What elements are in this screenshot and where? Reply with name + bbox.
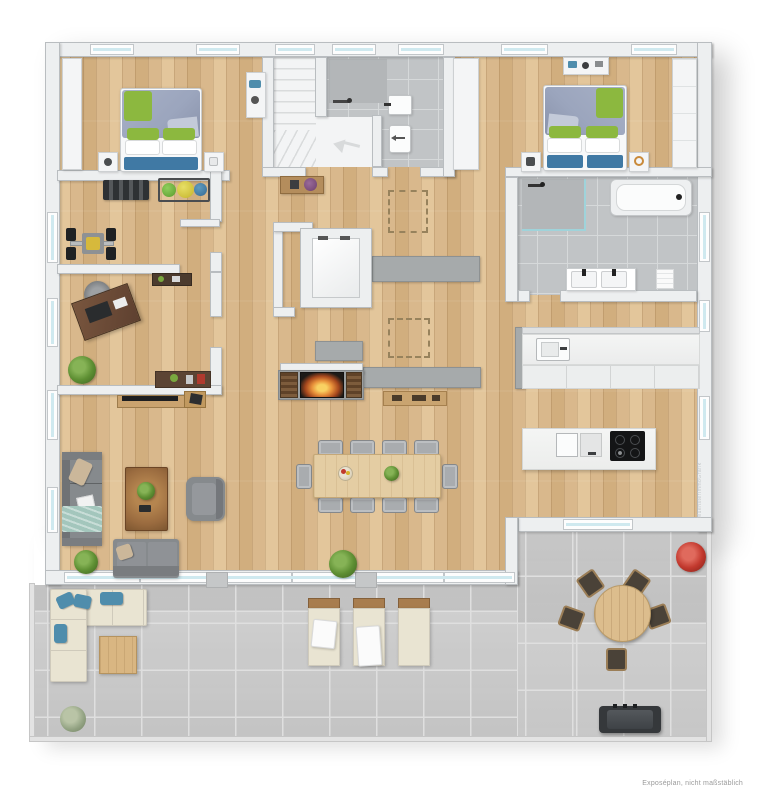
wall-bathroom-bottom-b (560, 290, 697, 302)
bathtub-faucet-icon (676, 194, 682, 200)
elevator-mechanism-icon (318, 236, 328, 240)
wall-landing-stub (372, 115, 382, 167)
hall-sideboard-item (290, 180, 299, 189)
bed1-pillow-white-right (162, 140, 197, 155)
exercise-ball-green (162, 183, 176, 197)
bed1-pillow-green-right (163, 128, 195, 140)
shelf-plant-icon (158, 276, 164, 282)
log-icon (432, 395, 440, 401)
burner-icon (630, 448, 640, 458)
wc-basin-faucet-icon (384, 103, 391, 106)
living-room-plant (74, 550, 98, 574)
weight-bench-pad (86, 237, 100, 250)
lounger-towel (311, 619, 338, 649)
sofa-blanket-teal (62, 506, 102, 532)
watermark-text: MuensterImmoGrafik (697, 408, 703, 518)
window-top-3 (275, 44, 315, 55)
bed1-pillow-white-left (125, 140, 160, 155)
dining-chair (350, 497, 375, 513)
side-table-item (189, 393, 203, 405)
terrace-shrub (60, 706, 86, 732)
shower-glass-bottom (522, 229, 586, 231)
ceiling-opening-dashed-lower (388, 318, 430, 358)
terrace-round-table (594, 585, 651, 642)
half-wall-lower (363, 367, 481, 388)
barbell-plate (106, 247, 116, 260)
kitchen-cabinets (522, 365, 700, 389)
burner-icon (615, 448, 625, 458)
window-right-1 (699, 212, 710, 262)
half-wall-small (315, 341, 363, 361)
bed1-foot-bench (124, 157, 198, 170)
outdoor-coffee-table (99, 636, 137, 674)
wc-arrow-icon (391, 135, 396, 141)
terrace-curb-left (29, 583, 35, 742)
log-icon (392, 395, 402, 401)
barbell-plate (66, 228, 76, 241)
bedroom1-desk-item (251, 96, 259, 104)
wc-shower-zone (329, 59, 387, 103)
bedroom2-closet (672, 58, 697, 168)
dining-floor-plant (329, 550, 357, 578)
window-top-4 (332, 44, 376, 55)
bed2-foot-bench-left (547, 155, 583, 168)
bed2-nightstand-item (526, 157, 535, 166)
dresser-item (568, 61, 577, 68)
wall-fitness-stub (180, 219, 220, 227)
window-top-6 (501, 44, 548, 55)
floorplan-canvas: MuensterImmoGrafik Exposéplan, nicht maß… (0, 0, 757, 800)
elevator-car (312, 238, 360, 298)
bed2-green-throw (596, 88, 623, 118)
hall-sideboard (280, 176, 324, 194)
bed2-foot-bench-right (587, 155, 623, 168)
fireplace-fire (300, 372, 344, 398)
grill-knob-icon (633, 704, 637, 708)
bed2-pillow-white-right (585, 138, 620, 153)
window-top-5 (398, 44, 444, 55)
barbell-plate (106, 228, 116, 241)
kitchen-sink-basin (541, 342, 559, 357)
bedroom1-wardrobe (62, 58, 82, 170)
sideboard-plant-icon (170, 374, 178, 382)
dining-table-plant (384, 466, 399, 481)
terrace-curb-bottom (29, 736, 712, 742)
dresser-item (582, 62, 589, 69)
window-top-7 (631, 44, 677, 55)
terrace-curb-right (706, 526, 712, 742)
loveseat-backrest (113, 566, 179, 576)
coffee-table-remote (139, 505, 151, 512)
outdoor-pillow (100, 592, 123, 605)
office-plant (68, 356, 96, 384)
wall-bathroom-left (505, 177, 518, 302)
wall-office-right-a (210, 272, 222, 317)
window-left-1 (47, 212, 58, 263)
loveseat-cushion (148, 542, 177, 568)
elevator-mechanism-icon (340, 236, 350, 240)
window-right-2 (699, 300, 710, 332)
bed1-lamp-icon (104, 158, 112, 166)
window-left-3 (47, 390, 58, 440)
exercise-ball-yellow (177, 181, 194, 198)
half-wall-upper (372, 256, 480, 282)
log-icon (412, 395, 426, 401)
window-kitchen-terrace (563, 519, 633, 530)
wall-elevator-left (273, 222, 283, 308)
dining-chair (382, 497, 407, 513)
shelf-item (172, 276, 180, 282)
exercise-ball-blue (194, 183, 207, 196)
island-sink (556, 433, 578, 457)
outdoor-pillow (54, 624, 67, 643)
wall-fitness-right-a (210, 170, 222, 222)
dining-chair (318, 497, 343, 513)
island-faucet-icon (588, 452, 596, 455)
terrace-door-step-2 (355, 572, 377, 588)
staircase-straight-flight (274, 57, 316, 133)
sideboard-frame-icon (186, 375, 193, 384)
wall-bathroom-bottom-a (518, 290, 530, 302)
kitchen-counter-back-panel (522, 327, 700, 334)
shower-glass-right (584, 179, 586, 231)
dining-table (313, 454, 441, 498)
grill-knob-icon (613, 704, 617, 708)
towel-stack (656, 269, 674, 289)
kitchen-faucet-icon (560, 347, 567, 350)
vanity-faucet-icon (612, 269, 616, 276)
dining-chair (414, 497, 439, 513)
tv-flatscreen (122, 396, 178, 401)
wc-shower-head-icon (347, 98, 352, 103)
sun-lounger (398, 608, 430, 666)
sideboard-frame-icon (197, 374, 205, 384)
window-top-2 (196, 44, 240, 55)
wall-fitness-right-b (210, 252, 222, 272)
hall-plant-purple (304, 178, 317, 191)
coffee-table-plant (137, 482, 155, 500)
fruit-icon (346, 471, 350, 475)
barbell-plate (66, 247, 76, 260)
plan-caption: Exposéplan, nicht maßstäblich (642, 780, 743, 787)
dining-chair-end (442, 464, 458, 489)
bedroom1-desk-item (249, 80, 261, 88)
window-left-2 (47, 298, 58, 347)
lounger-towel (356, 625, 383, 667)
desk-papers (113, 297, 128, 310)
terrace-red-plant (676, 542, 706, 572)
wall-elevator-bottom (273, 307, 295, 317)
bed1-nightstand-item (209, 157, 218, 166)
armchair-backrest (216, 479, 223, 519)
weight-rack (103, 180, 149, 200)
burner-icon (630, 435, 640, 445)
bed2-pillow-green-left (549, 126, 581, 138)
dining-chair-end (296, 464, 312, 489)
wall-center-bottom-b (372, 167, 388, 177)
terrace-chair (606, 648, 627, 671)
bedroom1-desk (246, 72, 266, 118)
terrace-door-step-1 (206, 572, 228, 588)
firewood-stack-right (346, 372, 362, 398)
burner-icon (615, 435, 625, 445)
laptop (85, 301, 113, 323)
window-top-1 (90, 44, 134, 55)
vanity-faucet-icon (582, 269, 586, 276)
sofa-armrest-bottom (62, 538, 102, 546)
firewood-stack-left (280, 372, 298, 398)
bed1-green-throw (124, 91, 152, 121)
bed2-pillow-green-right (586, 126, 618, 138)
wc-washbasin (388, 95, 412, 115)
shower-head-icon (540, 182, 545, 187)
outer-wall-top (45, 42, 712, 57)
bbq-grill-lid (607, 710, 653, 729)
dresser-item (595, 61, 603, 67)
armchair-seat (192, 483, 216, 515)
grill-knob-icon (623, 704, 627, 708)
cooktop (610, 431, 645, 461)
sofa-cushion-seam (70, 483, 102, 484)
bed2-pillow-white-left (547, 138, 582, 153)
wall-stairs-wc-divider (315, 57, 327, 117)
corridor-wardrobe (453, 58, 479, 170)
bed2-tray-icon (634, 156, 644, 166)
window-left-4 (47, 487, 58, 533)
bed1-pillow-green-left (127, 128, 159, 140)
ceiling-opening-dashed-upper (388, 190, 428, 233)
